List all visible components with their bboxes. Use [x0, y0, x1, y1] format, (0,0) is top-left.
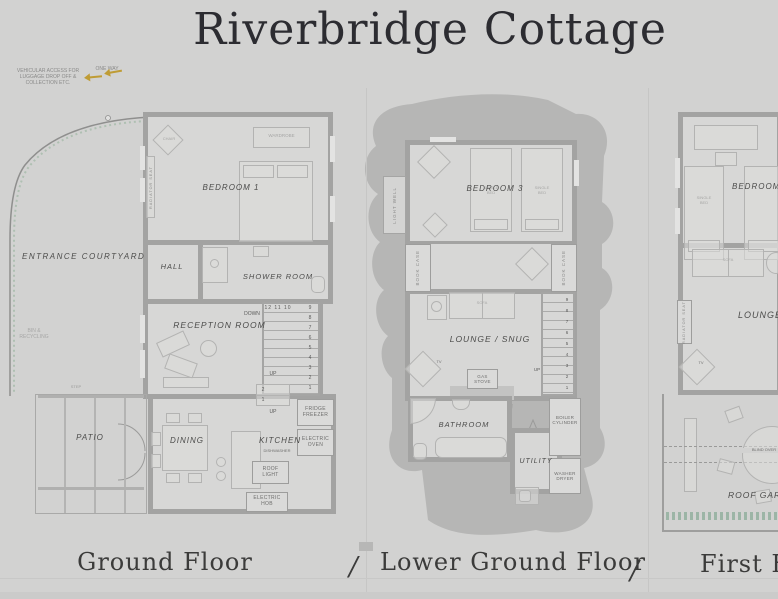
dining-chair: [166, 473, 180, 483]
floor-label-ground: Ground Floor: [70, 548, 260, 576]
plan-divider: [366, 88, 367, 592]
room-label-dining: DINING: [165, 436, 209, 445]
room-label-bathroom: BATHROOM: [432, 420, 496, 429]
sofa-label: SOFA: [716, 258, 740, 263]
dining-chair: [151, 454, 161, 468]
patio-pergola: [35, 394, 147, 514]
shower-drain: [210, 259, 219, 268]
room-label-bedroom1: BEDROOM 1: [196, 183, 266, 192]
pergola-beam: [38, 395, 144, 398]
book-case: BOOK CASE: [405, 244, 431, 292]
kitchen-steps-up-label: UP: [266, 407, 280, 417]
stair-numbers-top: 12 11 10: [260, 303, 296, 313]
stairs-up-label: UP: [530, 365, 544, 375]
room-label-utility: UTILITY: [512, 458, 560, 465]
pillow: [243, 165, 274, 178]
stair-numbers-column: 9 8 7 6 5 4 3 2 1: [561, 294, 573, 393]
stair-numbers-column: 9 8 7 6 5 4 3 2 1: [303, 303, 317, 393]
toilet: [413, 443, 427, 460]
blind-over-label: BLIND OVER: [742, 448, 778, 453]
window: [675, 158, 680, 188]
pillow: [525, 219, 559, 230]
window: [140, 315, 145, 343]
electric-hob-box: ELECTRIC HOB: [246, 492, 288, 512]
label-separator: /: [349, 552, 358, 582]
book-case-label: BOOK CASE: [415, 250, 420, 286]
book-case: BOOK CASE: [551, 244, 577, 292]
radiator-seat-label: RADIATOR SEAT: [682, 301, 686, 344]
window: [574, 160, 579, 186]
room-hall: [143, 240, 203, 304]
coffee-table: [200, 340, 217, 357]
planter: [684, 418, 697, 492]
radiator-seat: RADIATOR SEAT: [146, 156, 155, 218]
floorplan-canvas: Riverbridge Cottage VEHICULAR ACCESS FOR…: [0, 0, 778, 599]
sink-bowl: [216, 471, 226, 481]
light-well: LIGHT WELL: [383, 176, 406, 234]
dishwasher-label: DISHWASHER: [260, 449, 294, 454]
room-label-shower: SHOWER ROOM: [228, 272, 328, 281]
room-label-entrance-courtyard: ENTRANCE COURTYARD: [22, 252, 140, 261]
step-label: STEP: [64, 385, 88, 390]
light-well-label: LIGHT WELL: [392, 187, 397, 224]
stairs-down-label: DOWN: [242, 309, 262, 319]
dining-table: [162, 425, 208, 471]
dining-chair: [188, 413, 202, 423]
drawer-unit: [715, 152, 737, 166]
boiler-cylinder-box: BOILER CYLINDER: [549, 398, 581, 456]
single-bed-label: SINGLE BED: [688, 196, 720, 206]
pergola-beam: [38, 487, 144, 490]
wardrobe: [694, 125, 758, 150]
bathtub: [435, 437, 507, 458]
gate-post: [106, 116, 111, 121]
gas-stove-box: GAS STOVE: [467, 369, 498, 389]
page-title: Riverbridge Cottage: [160, 4, 700, 55]
window: [430, 137, 456, 142]
room-label-hall: HALL: [152, 262, 192, 271]
wardrobe-label: WARDROBE: [255, 133, 308, 138]
sideboard: [163, 377, 209, 388]
pillow: [474, 219, 508, 230]
footer-rule: [0, 578, 778, 579]
radiator-seat: RADIATOR SEAT: [677, 300, 692, 344]
floor-label-lower-ground: Lower Ground Floor: [380, 548, 618, 576]
floor-label-first: First Floor: [700, 550, 778, 578]
window: [330, 196, 335, 222]
room-label-bedroom3: BEDROOM 3: [448, 184, 542, 193]
lamp: [431, 301, 442, 312]
vehicular-access-note: VEHICULAR ACCESS FOR LUGGAGE DROP OFF & …: [4, 68, 92, 86]
sink-bowl: [216, 457, 226, 467]
room-label-lounge-snug: LOUNGE / SNUG: [440, 334, 540, 344]
window: [330, 136, 335, 162]
room-label-lounge-first: LOUNGE: [730, 310, 778, 320]
chair-label: CHAIR: [157, 137, 181, 142]
footer-strip: [0, 592, 778, 599]
room-label-bedroom2: BEDROOM 2: [732, 182, 778, 191]
basin: [253, 246, 269, 257]
room-label-patio: PATIO: [66, 433, 114, 442]
kitchen-step-numbers: 2 1: [258, 385, 268, 405]
pillow: [277, 165, 308, 178]
room-label-kitchen: KITCHEN: [255, 436, 305, 445]
roof-light-box: ROOF LIGHT: [252, 461, 289, 484]
plan-divider: [648, 88, 649, 592]
window: [140, 146, 145, 170]
sink-bowl: [519, 490, 531, 502]
fridge-freezer-box: FRIDGE FREEZER: [297, 399, 334, 426]
room-label-reception: RECEPTION ROOM: [172, 320, 267, 330]
sofa: [692, 249, 764, 277]
radiator-seat-label: RADIATOR SEAT: [149, 166, 153, 209]
dining-chair: [188, 473, 202, 483]
book-case-label: BOOK CASE: [561, 250, 566, 286]
bin-recycling-label: BIN & RECYCLING: [2, 328, 66, 340]
sofa-label: SOFA: [470, 301, 494, 306]
tv-label: TV: [694, 361, 708, 366]
room-label-roof-garden: ROOF GARDEN: [728, 490, 778, 500]
window: [140, 350, 145, 378]
label-separator: /: [630, 556, 639, 586]
window: [140, 178, 145, 202]
dining-chair: [166, 413, 180, 423]
window: [675, 208, 680, 234]
dining-chair: [151, 432, 161, 446]
stairs-up-label: UP: [266, 369, 280, 379]
divider-tab: [359, 542, 373, 551]
planting-hatch: [666, 512, 778, 520]
tv-label: TV: [432, 360, 446, 365]
